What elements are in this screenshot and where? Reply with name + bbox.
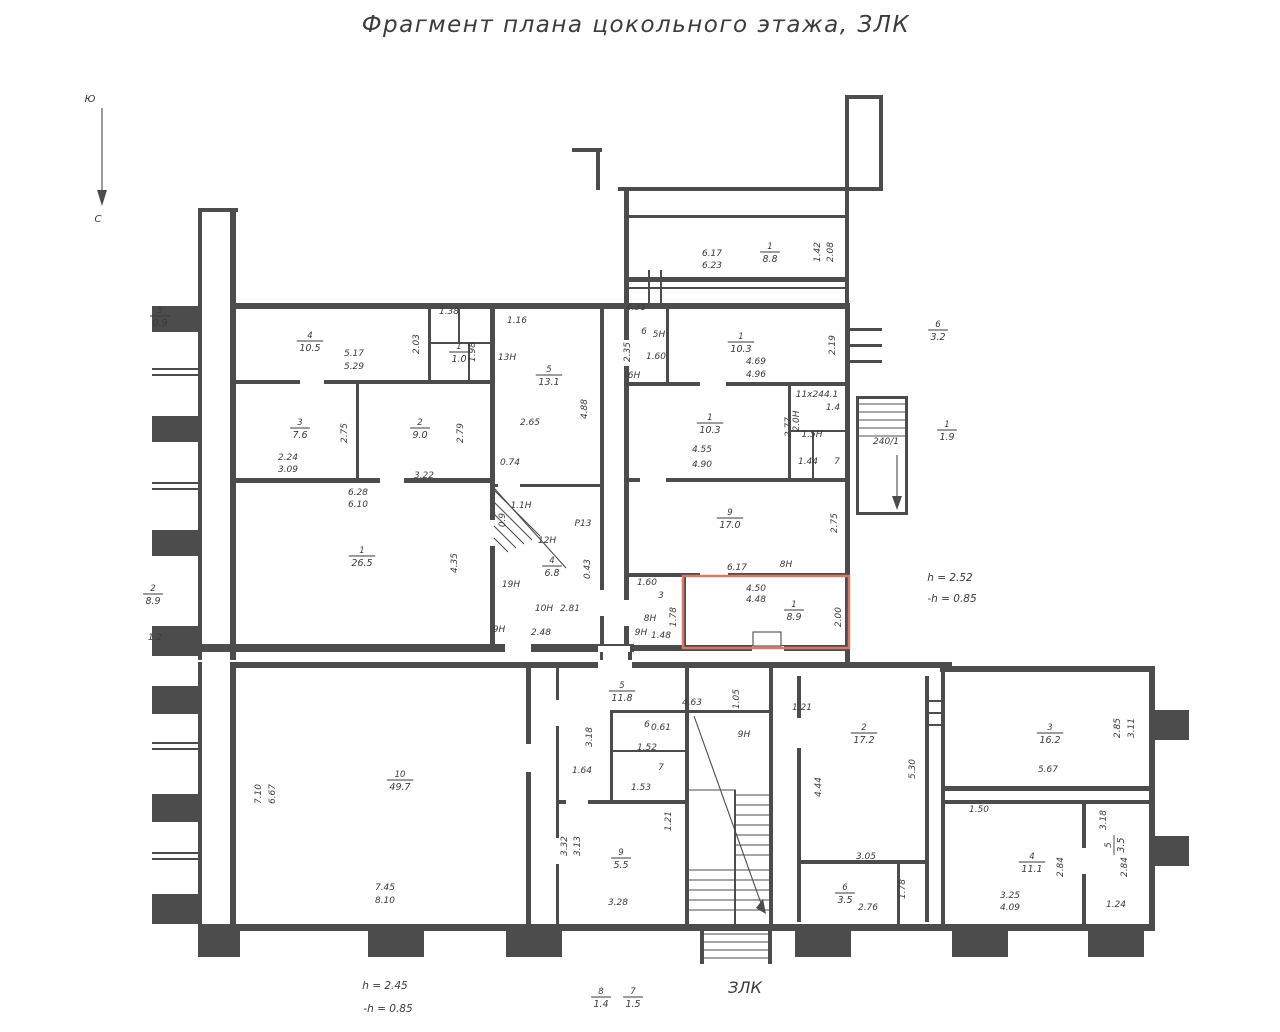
- room-number: 1: [456, 342, 461, 352]
- dim-label: 1.24: [1106, 900, 1126, 910]
- room-label: 316.2: [1037, 723, 1063, 746]
- compass-arrow: Ю С: [85, 94, 107, 225]
- dim-label: 240/1: [873, 437, 899, 447]
- dim-label: 4.44: [814, 777, 824, 797]
- dim-label: 1.38: [439, 307, 459, 317]
- dim-label: 0.61: [651, 723, 671, 733]
- room-label: 63.5: [835, 883, 855, 906]
- dim-label: 13Н: [498, 353, 516, 363]
- dim-label: 3.13: [573, 836, 583, 856]
- dim-label: 9Н: [493, 625, 506, 635]
- dim-label: 8Н: [780, 560, 793, 570]
- dim-label: 3.18: [1099, 810, 1109, 830]
- dim-label: 1.53: [631, 783, 651, 793]
- dim-label: 4.55: [692, 445, 712, 455]
- dim-label: 6.23: [702, 261, 722, 271]
- room-area: 3.5: [1116, 837, 1127, 852]
- room-labels: 18.8410.511.037.629.0513.1126.550.928.96…: [143, 242, 1127, 1010]
- room-area: 1.5: [625, 999, 640, 1010]
- room-number: 5: [619, 681, 624, 691]
- height-note-right-1: h = 2.52: [927, 572, 973, 584]
- page-title: Фрагмент плана цокольного этажа, ЗЛК: [362, 12, 911, 38]
- room-area: 10.3: [730, 344, 751, 355]
- dim-label: 11х244.1: [796, 390, 839, 400]
- room-label: 411.1: [1019, 852, 1045, 875]
- dim-label: 1.98: [468, 342, 478, 362]
- dim-label: 4.50: [746, 584, 766, 594]
- room-number: 9: [727, 508, 732, 518]
- room-number: 5: [1104, 842, 1114, 847]
- dim-label: 6.10: [348, 500, 368, 510]
- dim-label: 6.17: [727, 563, 747, 573]
- room-area: 8.9: [786, 612, 801, 623]
- room-number: 1: [791, 600, 796, 610]
- dim-label: 7.45: [375, 883, 395, 893]
- dim-label: 1.52: [637, 743, 657, 753]
- dim-label: 2.19: [828, 335, 838, 355]
- dim-label: 0.9: [498, 513, 508, 528]
- dim-label: 3.22: [414, 471, 434, 481]
- dim-label: 1.5Н: [801, 430, 822, 440]
- room-label: 410.5: [297, 331, 323, 354]
- dim-label: 2.48: [531, 628, 551, 638]
- dim-label: 1.21: [664, 811, 674, 831]
- dim-label: 1.50: [969, 805, 989, 815]
- dim-label: 7.10: [254, 784, 264, 804]
- room-number: 2: [861, 723, 866, 733]
- dim-label: 3.05: [856, 852, 876, 862]
- dim-label: 1.44: [798, 457, 818, 467]
- room-number: 6: [842, 883, 848, 893]
- room-number: 1: [767, 242, 772, 252]
- dim-label: 8.10: [375, 896, 395, 906]
- dim-label: 8Н: [644, 614, 657, 624]
- dim-label: 6.17: [702, 249, 722, 259]
- dim-label: 5.17: [344, 349, 364, 359]
- dim-label: 6.28: [348, 488, 368, 498]
- stair-treads: [494, 404, 905, 958]
- room-area: 9.0: [412, 430, 427, 441]
- dim-label: 1.60: [637, 578, 657, 588]
- dim-label: 4.35: [450, 553, 460, 573]
- room-label: 126.5: [349, 546, 375, 569]
- room-number: 1: [944, 420, 949, 430]
- dim-label: 4.90: [692, 460, 712, 470]
- room-area: 10.5: [299, 343, 320, 354]
- dim-label: 3.25: [1000, 891, 1020, 901]
- dim-label: 1.2: [148, 633, 163, 643]
- room-area: 13.1: [538, 377, 559, 388]
- compass-north-label: С: [95, 214, 102, 225]
- room-area: 17.2: [853, 735, 874, 746]
- height-note-bottom-1: h = 2.45: [362, 980, 408, 992]
- dim-label: 2.84: [1056, 857, 1066, 877]
- dim-label: 2.85: [1113, 718, 1123, 738]
- dim-label: 9Н: [738, 730, 751, 740]
- dim-label: 6Н: [628, 371, 641, 381]
- room-number: 5: [546, 365, 551, 375]
- dim-label: 1.1Н: [510, 501, 531, 511]
- dim-label: 9Н: [635, 628, 648, 638]
- dim-label: 1.64: [572, 766, 592, 776]
- dim-label: 2.77: [784, 417, 794, 437]
- dim-label: 1.42: [813, 242, 823, 262]
- room-area: 1.9: [939, 432, 954, 443]
- dim-label: 5.29: [344, 362, 364, 372]
- room-label: 511.8: [609, 681, 635, 704]
- dim-label: 5Н: [653, 330, 666, 340]
- dim-label: 4.96: [746, 370, 766, 380]
- dim-label: 2.65: [520, 418, 540, 428]
- room-label: 95.5: [611, 848, 631, 871]
- room-area: 8.9: [145, 596, 160, 607]
- dim-label: 0.74: [500, 458, 520, 468]
- dim-label: 1.78: [669, 607, 679, 627]
- room-number: 4: [307, 331, 312, 341]
- dim-label: 4.63: [682, 698, 702, 708]
- dim-label: 7: [658, 763, 664, 773]
- dim-label: 5.30: [908, 759, 918, 779]
- dim-label: 3: [658, 591, 664, 601]
- room-label: 110.3: [697, 413, 723, 436]
- room-area: 6.8: [544, 568, 559, 579]
- room-area: 10.3: [699, 425, 720, 436]
- dim-label: 2.24: [278, 453, 298, 463]
- room-area: 3.5: [837, 895, 852, 906]
- height-note-right-2: -h = 0.85: [927, 593, 977, 605]
- dim-label: 5.67: [1038, 765, 1058, 775]
- dim-label: 2.08: [826, 242, 836, 262]
- dim-label: 6: [641, 327, 647, 337]
- dim-label: 0.43: [583, 559, 593, 579]
- room-area: 1.0: [451, 354, 466, 365]
- dim-label: 3.18: [585, 727, 595, 747]
- dim-label: 1.48: [651, 631, 671, 641]
- room-number: 8: [598, 987, 604, 997]
- room-number: 10: [395, 770, 406, 780]
- dim-label: 2.76: [858, 903, 878, 913]
- dim-labels: 6.176.231.422.085.175.292.031.381.981.16…: [148, 242, 1137, 913]
- room-label: 513.1: [536, 365, 562, 388]
- room-label: 917.0: [717, 508, 743, 531]
- room-label: 53.5: [1104, 835, 1127, 855]
- room-number: 1: [359, 546, 364, 556]
- room-area: 49.7: [389, 782, 410, 793]
- room-label: 28.9: [143, 584, 163, 607]
- room-area: 26.5: [351, 558, 372, 569]
- room-label: 18.8: [760, 242, 780, 265]
- dim-label: 4.48: [746, 595, 766, 605]
- room-number: 7: [630, 987, 636, 997]
- compass-south-label: Ю: [85, 94, 96, 105]
- room-number: 3: [1047, 723, 1052, 733]
- room-number: 5: [157, 306, 162, 316]
- room-area: 17.0: [719, 520, 740, 531]
- dim-label: 1.05: [732, 689, 742, 709]
- room-number: 3: [297, 418, 302, 428]
- room-area: 11.8: [611, 693, 632, 704]
- dim-label: 1.21: [792, 703, 812, 713]
- dim-label: 2.75: [340, 423, 350, 443]
- dim-label: 19Н: [502, 580, 520, 590]
- room-area: 3.2: [930, 332, 945, 343]
- dim-label: 2.75: [830, 513, 840, 533]
- room-area: 1.4: [593, 999, 608, 1010]
- room-area: 5.5: [613, 860, 628, 871]
- dim-label: 12Н: [538, 536, 556, 546]
- room-label: 1049.7: [387, 770, 413, 793]
- room-label: 81.4: [591, 987, 611, 1010]
- height-note-bottom-2: -h = 0.85: [363, 1003, 413, 1015]
- room-area: 11.1: [1021, 864, 1042, 875]
- room-label: 11.0: [449, 342, 469, 365]
- room-number: 6: [935, 320, 941, 330]
- dim-label: 6.67: [268, 784, 278, 804]
- dim-label: 1.4: [826, 403, 841, 413]
- room-number: 4: [1029, 852, 1034, 862]
- room-label: 18.9: [784, 600, 804, 623]
- room-label: 37.6: [290, 418, 310, 441]
- room-label: 63.2: [928, 320, 948, 343]
- dim-label: 3.09: [278, 465, 298, 475]
- dim-label: 2.35: [623, 342, 633, 362]
- walls: [198, 95, 1155, 931]
- dim-label: 3.11: [1127, 718, 1137, 738]
- room-number: 4: [549, 556, 554, 566]
- room-label: 217.2: [851, 723, 877, 746]
- dim-label: 3.28: [608, 898, 628, 908]
- dim-label: 2.84: [1120, 857, 1130, 877]
- dim-label: 2.79: [456, 423, 466, 443]
- dim-label: 4.31: [626, 303, 646, 313]
- dim-label: 10Н: [535, 604, 553, 614]
- dim-label: 1.60: [646, 352, 666, 362]
- room-area: 16.2: [1039, 735, 1060, 746]
- dim-label: 4.09: [1000, 903, 1020, 913]
- room-label: 71.5: [623, 987, 643, 1010]
- room-label: 29.0: [410, 418, 430, 441]
- room-number: 1: [738, 332, 743, 342]
- dim-label: 6: [644, 720, 650, 730]
- dim-label: 4.69: [746, 357, 766, 367]
- room-area: 8.8: [762, 254, 777, 265]
- dim-label: Р13: [575, 519, 592, 529]
- dim-label: 1.78: [898, 879, 908, 899]
- dim-label: 2.00: [834, 607, 844, 627]
- room-number: 9: [618, 848, 623, 858]
- room-label: 11.9: [937, 420, 957, 443]
- stair-label: ЗЛК: [728, 978, 762, 997]
- room-area: 7.6: [292, 430, 307, 441]
- floor-plan-svg: Ю С Фрагмент плана цокольного этажа, ЗЛК…: [0, 0, 1280, 1032]
- room-number: 1: [707, 413, 712, 423]
- dim-label: 3.32: [560, 836, 570, 856]
- dim-label: 7: [834, 457, 840, 467]
- dim-label: 1.16: [507, 316, 527, 326]
- room-area: 0.9: [152, 318, 167, 329]
- room-number: 2: [417, 418, 422, 428]
- room-label: 110.3: [728, 332, 754, 355]
- dim-label: 2.03: [412, 334, 422, 354]
- dim-label: 4.88: [580, 399, 590, 419]
- dim-label: 2.81: [560, 604, 580, 614]
- room-number: 2: [150, 584, 155, 594]
